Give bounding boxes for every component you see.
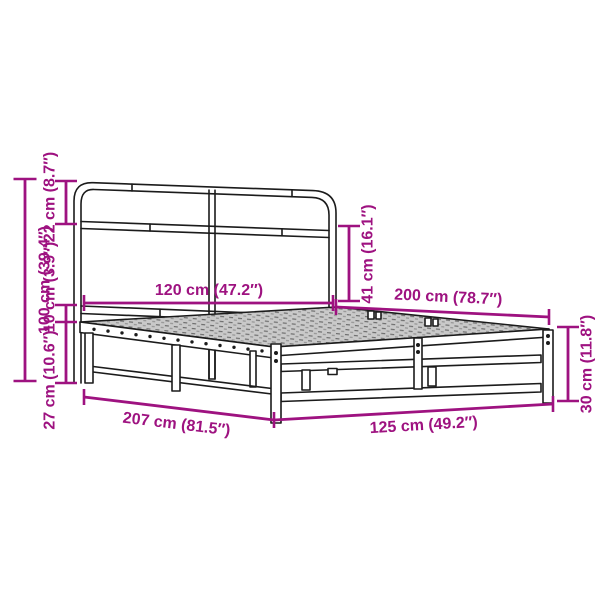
dim-30-label: 30 cm (11.8″) xyxy=(579,315,596,413)
divider-leg xyxy=(271,344,281,423)
foot-slot-left xyxy=(302,370,310,390)
dim-rail-above-base: 10 cm (3.9″) xyxy=(42,242,77,332)
foot-right-leg xyxy=(543,330,553,403)
dim-total-width: 125 cm (49.2″) xyxy=(274,396,553,437)
center-post-lower xyxy=(209,350,215,379)
headboard-upper-bar xyxy=(81,222,329,238)
lower-side-bar xyxy=(89,366,276,395)
dimension-diagram: 100 cm (39.4″) 22 cm (8.7″) 10 cm (3.9″)… xyxy=(0,0,600,600)
dim-under-bed-label: 27 cm (10.6″) xyxy=(42,330,59,429)
dim-total-length: 207 cm (81.5″) xyxy=(84,389,274,439)
dim-41-label: 41 cm (16.1″) xyxy=(360,204,377,303)
foot-notch xyxy=(328,369,337,375)
dim-200-label: 200 cm (78.7″) xyxy=(394,286,503,308)
foot-slot-right xyxy=(428,367,436,386)
dim-headboard-top-section: 22 cm (8.7″) xyxy=(42,152,77,242)
foot-mid-rail xyxy=(281,355,541,372)
foot-lower-rail xyxy=(281,384,541,402)
dim-under-bed-clearance: 27 cm (10.6″) xyxy=(42,322,77,430)
dim-base-height: 30 cm (11.8″) xyxy=(557,315,596,413)
support-upright xyxy=(250,351,256,387)
head-front-leg xyxy=(85,333,93,383)
dim-headboard-width-label: 120 cm (47.2″) xyxy=(155,282,263,299)
dim-headboard-above-platform: 41 cm (16.1″) xyxy=(338,204,377,303)
dim-rail-above-base-label: 10 cm (3.9″) xyxy=(42,242,59,332)
dim-headboard-top-label: 22 cm (8.7″) xyxy=(42,152,59,242)
dim-125-label: 125 cm (49.2″) xyxy=(369,414,478,437)
middle-leg xyxy=(172,345,180,391)
bed-frame-drawing: 100 cm (39.4″) 22 cm (8.7″) 10 cm (3.9″)… xyxy=(0,0,600,600)
